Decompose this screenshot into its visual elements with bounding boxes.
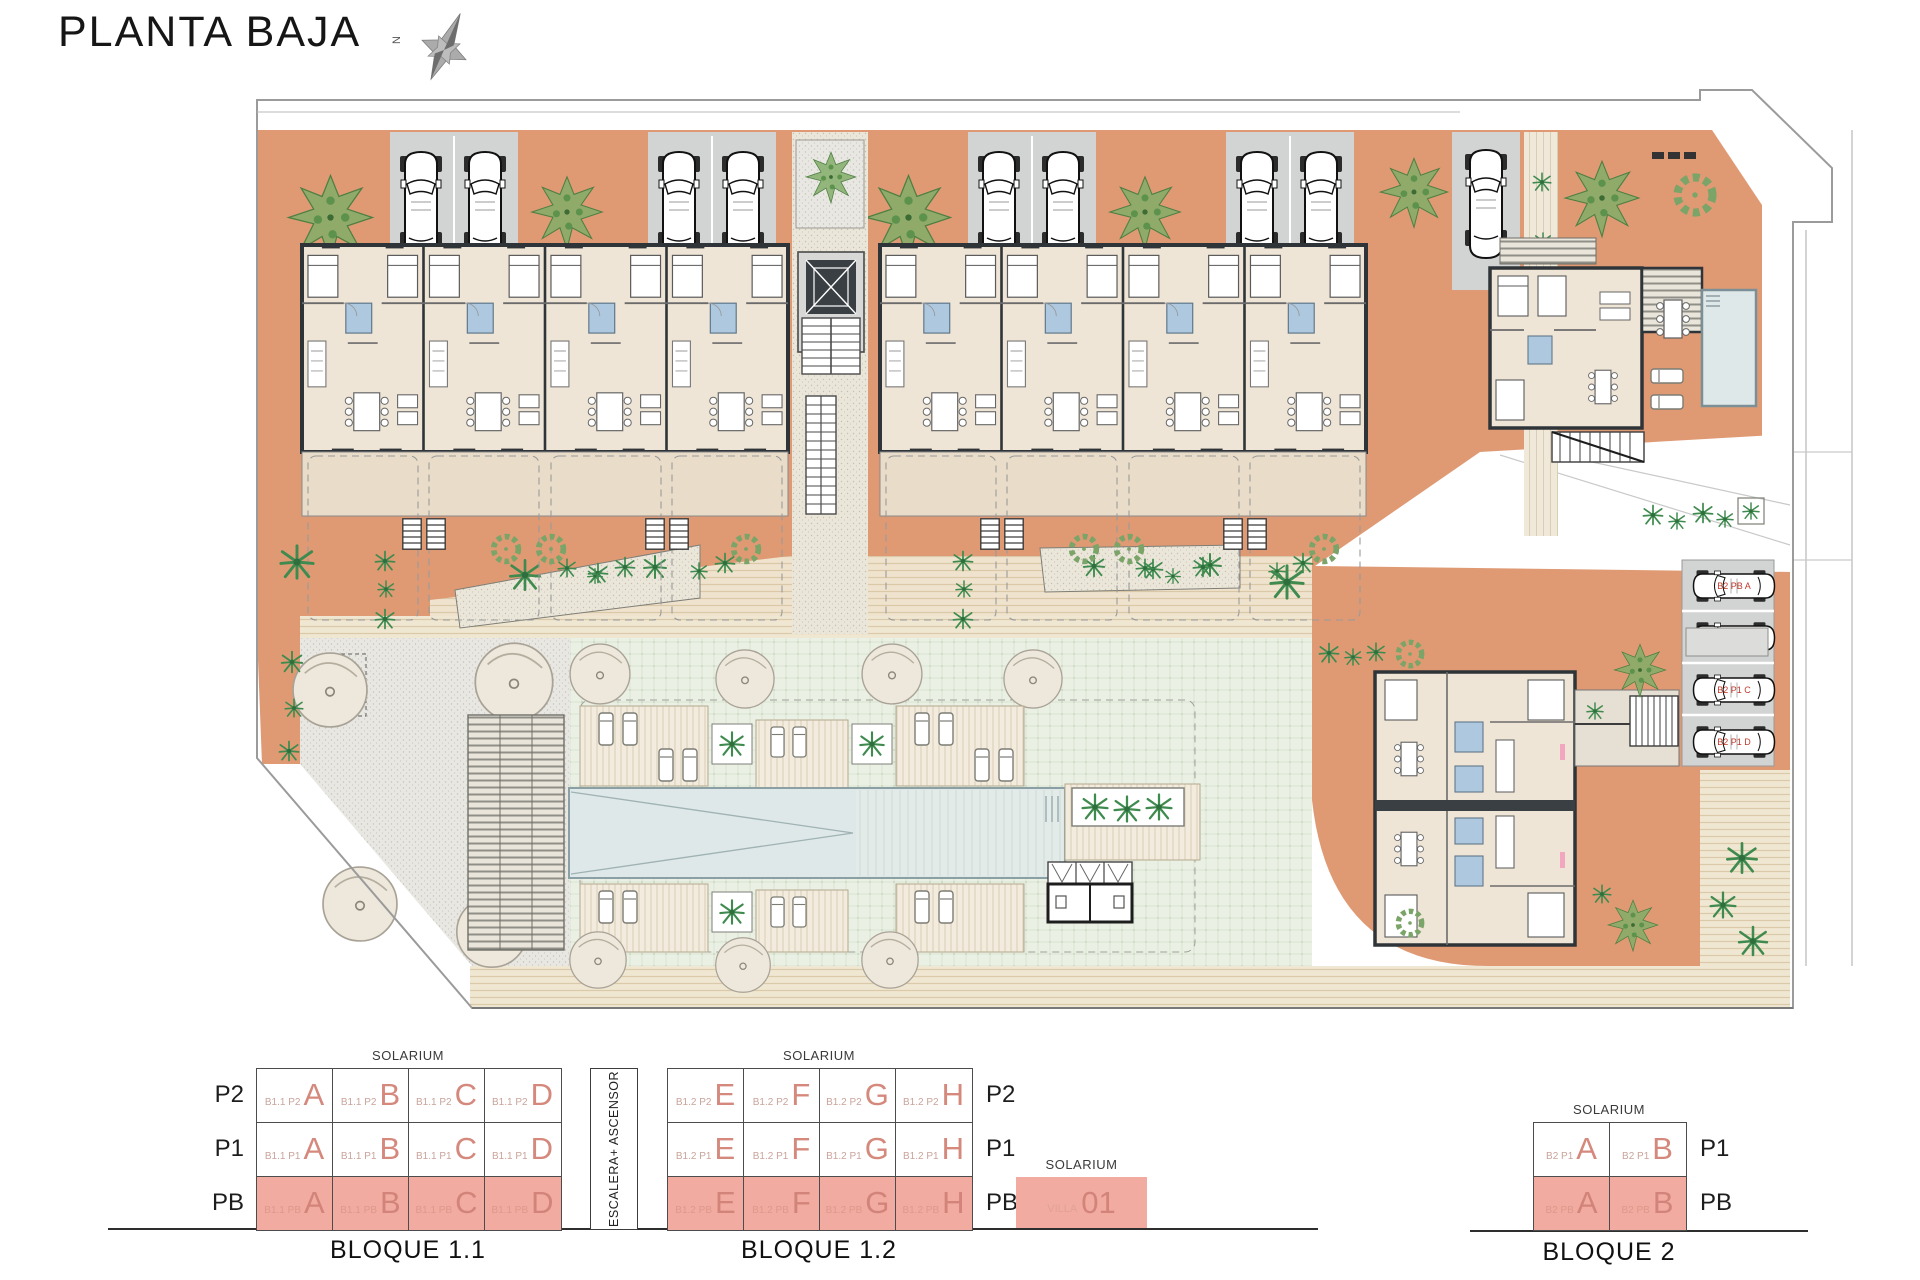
solarium-label-villa: SOLARIUM	[1016, 1157, 1147, 1172]
pool-wc-block	[1048, 862, 1132, 922]
unit-cell-B1.1-PB-C: B1.1 PBC	[408, 1176, 486, 1231]
unit-cell-B1.2-PB-H: B1.2 PBH	[895, 1176, 973, 1231]
unit-cell-letter: B	[1652, 1131, 1673, 1167]
unit-cell-letter: F	[792, 1185, 811, 1221]
unit-cell-B2-P1-A: B2 P1A	[1533, 1122, 1611, 1177]
pool	[569, 788, 1065, 878]
unit-cell-B1.1-PB-D: B1.1 PBD	[484, 1176, 562, 1231]
unit-cell-prefix: B2 PB	[1545, 1205, 1573, 1216]
escalera-ascensor-box: ESCALERA+ ASCENSOR	[590, 1068, 638, 1230]
unit-grid-bloque-1-1: B1.1 P2AB1.1 P2BB1.1 P2CB1.1 P2DB1.1 P1A…	[256, 1068, 560, 1230]
unit-cell-B1.2-P2-F: B1.2 P2F	[743, 1068, 821, 1123]
unit-cell-prefix: B1.1 P2	[265, 1097, 301, 1108]
solarium-label-b2: SOLARIUM	[1533, 1102, 1685, 1117]
solarium-label-b11: SOLARIUM	[256, 1048, 560, 1063]
unit-cell-B1.2-P1-E: B1.2 P1E	[667, 1122, 745, 1177]
villa-01-cell: VILLA 01	[1016, 1177, 1147, 1228]
unit-cell-prefix: B1.2 P2	[903, 1097, 939, 1108]
unit-cell-letter: C	[455, 1131, 477, 1167]
unit-cell-prefix: B1.2 P1	[676, 1151, 712, 1162]
unit-grid-bloque-1-2: B1.2 P2EB1.2 P2FB1.2 P2GB1.2 P2HB1.2 P1E…	[667, 1068, 971, 1230]
unit-cell-letter: A	[303, 1131, 324, 1167]
unit-cell-letter: G	[865, 1077, 889, 1113]
villa-name-small: VILLA	[1047, 1203, 1077, 1215]
unit-cell-prefix: B1.1 PB	[415, 1205, 452, 1216]
pergola	[468, 715, 564, 950]
unit-cell-B1.1-P1-B: B1.1 P1B	[332, 1122, 410, 1177]
unit-cell-prefix: B1.1 PB	[491, 1205, 528, 1216]
bloque2-parking: B2 PB A B2 PB B B2 P1 C B2 P1 D	[1682, 560, 1775, 766]
site-plan: B2 PB A B2 PB B B2 P1 C B2 P1 D	[0, 0, 1920, 1035]
unit-cell-B1.1-P1-D: B1.1 P1D	[484, 1122, 562, 1177]
escalera-ascensor-label: ESCALERA+ ASCENSOR	[607, 1071, 621, 1227]
long-stairs	[806, 396, 836, 514]
parking-label: B2 PB A	[1717, 581, 1751, 591]
unit-cell-letter: A	[304, 1185, 325, 1221]
unit-cell-letter: A	[303, 1077, 324, 1113]
unit-cell-B1.1-P1-A: B1.1 P1A	[256, 1122, 334, 1177]
unit-cell-prefix: B1.1 P1	[416, 1151, 452, 1162]
sun-deck	[580, 884, 1024, 952]
unit-cell-prefix: B1.2 P1	[753, 1151, 789, 1162]
unit-cell-letter: B	[380, 1185, 401, 1221]
unit-cell-prefix: B2 P1	[1546, 1151, 1573, 1162]
floor-labels-b11: P2P1PB	[186, 1068, 244, 1230]
unit-cell-B1.1-P2-B: B1.1 P2B	[332, 1068, 410, 1123]
unit-cell-B1.1-P1-C: B1.1 P1C	[408, 1122, 486, 1177]
unit-cell-prefix: B1.2 PB	[675, 1205, 712, 1216]
unit-cell-B1.2-PB-F: B1.2 PBF	[743, 1176, 821, 1231]
unit-cell-B1.2-PB-E: B1.2 PBE	[667, 1176, 745, 1231]
unit-cell-B1.2-P2-E: B1.2 P2E	[667, 1068, 745, 1123]
unit-cell-B1.1-PB-A: B1.1 PBA	[256, 1176, 334, 1231]
floor-label-PB: PB	[212, 1176, 244, 1230]
unit-cell-letter: G	[865, 1131, 889, 1167]
pool-garden	[293, 638, 1312, 992]
unit-grid-bloque-2: B2 P1AB2 P1BB2 PBAB2 PBB	[1533, 1122, 1685, 1230]
bloque-1-1-name: BLOQUE 1.1	[256, 1236, 560, 1265]
unit-cell-letter: E	[714, 1131, 735, 1167]
unit-cell-letter: G	[865, 1185, 889, 1221]
floor-label-P1: P1	[1700, 1122, 1758, 1176]
bloque-1-2-name: BLOQUE 1.2	[667, 1236, 971, 1265]
villa-pool	[1702, 290, 1756, 406]
unit-cell-letter: C	[455, 1185, 477, 1221]
unit-cell-letter: H	[942, 1185, 964, 1221]
unit-cell-letter: B	[1653, 1185, 1674, 1221]
unit-cell-prefix: B2 P1	[1622, 1151, 1649, 1162]
villa-name-big: 01	[1081, 1185, 1115, 1221]
unit-cell-letter: D	[531, 1077, 553, 1113]
unit-cell-letter: H	[942, 1131, 964, 1167]
unit-cell-B2-PB-A: B2 PBA	[1533, 1176, 1611, 1231]
bloque-2-name: BLOQUE 2	[1533, 1238, 1685, 1267]
unit-cell-B1.2-PB-G: B1.2 PBG	[819, 1176, 897, 1231]
round-tree	[293, 653, 367, 727]
unit-cell-prefix: B1.1 PB	[340, 1205, 377, 1216]
unit-cell-letter: D	[531, 1185, 553, 1221]
bloque2-building	[1375, 672, 1575, 945]
parking-label: B2 P1 D	[1717, 737, 1751, 747]
round-tree	[475, 643, 552, 720]
unit-cell-letter: F	[791, 1077, 810, 1113]
unit-cell-letter: A	[1577, 1185, 1598, 1221]
parking-label: B2 P1 C	[1717, 685, 1751, 695]
unit-cell-letter: C	[455, 1077, 477, 1113]
unit-cell-B2-P1-B: B2 P1B	[1609, 1122, 1687, 1177]
unit-cell-prefix: B1.2 P2	[826, 1097, 862, 1108]
unit-cell-prefix: B1.1 P2	[492, 1097, 528, 1108]
unit-cell-prefix: B1.1 P1	[265, 1151, 301, 1162]
unit-cell-B1.1-P2-D: B1.1 P2D	[484, 1068, 562, 1123]
stairs	[802, 318, 860, 374]
elevator-shaft	[806, 260, 856, 314]
unit-cell-prefix: B1.2 PB	[752, 1205, 789, 1216]
unit-cell-prefix: B1.1 P2	[341, 1097, 377, 1108]
unit-cell-prefix: B1.2 P2	[753, 1097, 789, 1108]
unit-cell-prefix: B1.2 P1	[826, 1151, 862, 1162]
unit-cell-prefix: B1.1 PB	[264, 1205, 301, 1216]
unit-cell-letter: F	[791, 1131, 810, 1167]
garden-tree	[1380, 158, 1447, 227]
unit-cell-prefix: B2 PB	[1621, 1205, 1649, 1216]
unit-cell-letter: D	[531, 1131, 553, 1167]
unit-cell-letter: E	[714, 1077, 735, 1113]
planter	[1072, 788, 1184, 826]
unit-cell-prefix: B1.2 PB	[902, 1205, 939, 1216]
floor-label-PB: PB	[1700, 1176, 1758, 1230]
unit-cell-B1.1-P2-C: B1.1 P2C	[408, 1068, 486, 1123]
floor-labels-b2: P1PB	[1700, 1122, 1758, 1230]
central-stairs-elevator	[792, 132, 868, 634]
unit-cell-letter: H	[942, 1077, 964, 1113]
unit-cell-letter: E	[715, 1185, 736, 1221]
unit-cell-prefix: B1.1 P2	[416, 1097, 452, 1108]
floor-label-P2: P2	[986, 1068, 1044, 1122]
unit-cell-prefix: B1.1 P1	[492, 1151, 528, 1162]
floor-label-P2: P2	[215, 1068, 244, 1122]
floor-label-P1: P1	[215, 1122, 244, 1176]
unit-cell-B2-PB-B: B2 PBB	[1609, 1176, 1687, 1231]
unit-cell-letter: B	[379, 1131, 400, 1167]
villa-entry-stairs	[1552, 432, 1644, 462]
unit-cell-letter: A	[1576, 1131, 1597, 1167]
unit-cell-prefix: B1.1 P1	[341, 1151, 377, 1162]
unit-cell-prefix: B1.2 P1	[903, 1151, 939, 1162]
unit-cell-B1.2-P1-G: B1.2 P1G	[819, 1122, 897, 1177]
unit-cell-B1.2-P1-H: B1.2 P1H	[895, 1122, 973, 1177]
unit-cell-B1.1-P2-A: B1.1 P2A	[256, 1068, 334, 1123]
unit-cell-prefix: B1.2 P2	[676, 1097, 712, 1108]
unit-cell-B1.2-P2-H: B1.2 P2H	[895, 1068, 973, 1123]
unit-cell-letter: B	[379, 1077, 400, 1113]
unit-cell-B1.1-PB-B: B1.1 PBB	[332, 1176, 410, 1231]
solarium-label-b12: SOLARIUM	[667, 1048, 971, 1063]
unit-cell-B1.2-P1-F: B1.2 P1F	[743, 1122, 821, 1177]
unit-cell-B1.2-P2-G: B1.2 P2G	[819, 1068, 897, 1123]
unit-cell-prefix: B1.2 PB	[826, 1205, 863, 1216]
